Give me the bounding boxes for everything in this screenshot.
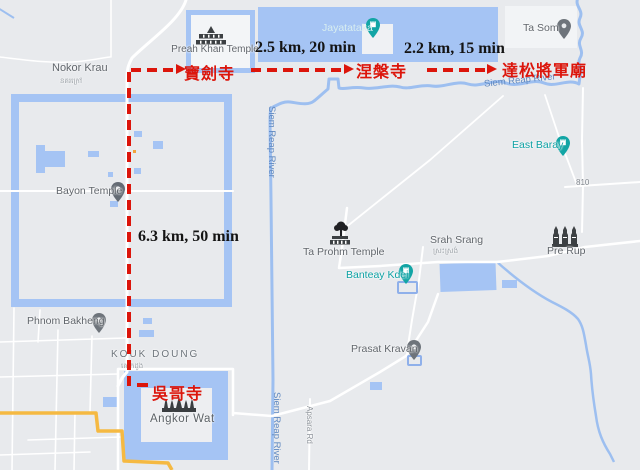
road-label-810: 810 (576, 179, 589, 187)
route-line-vertical (127, 72, 131, 389)
locality-label-kouk-doung-khmer: គោកដូង (121, 363, 143, 370)
distance-label-2: 2.2 km, 15 min (404, 40, 505, 58)
poi-label-srah-srang-khmer: ស្រះស្រង់ (433, 248, 458, 255)
stop-label-preah-khan: 寶劍寺 (184, 60, 235, 84)
route-arrowhead-2 (344, 64, 354, 74)
poi-label-banteay-kdei[interactable]: Banteay Kdei (346, 270, 408, 281)
stop-label-angkor-wat: 吳哥寺 (152, 380, 203, 404)
poi-label-prasat-kravan[interactable]: Prasat Kravan (351, 344, 418, 355)
stop-label-ta-som: 達松將軍廟 (502, 57, 587, 81)
poi-label-ta-prohm[interactable]: Ta Prohm Temple (303, 247, 385, 258)
three-towers-icon (551, 225, 579, 247)
water-label-jayatataka[interactable]: Jayatataka (322, 23, 373, 34)
preah-khan-temple-icon (196, 26, 226, 46)
locality-label-kouk-doung[interactable]: KOUK DOUNG (111, 350, 199, 361)
route-arrowhead-3 (487, 64, 497, 74)
route-line-h2 (251, 68, 344, 72)
poi-label-ta-som[interactable]: Ta Som (523, 23, 559, 34)
highway-road (0, 413, 172, 470)
route-line-h1 (131, 68, 176, 72)
map-canvas[interactable]: Preah Khan Temple Nokor Krau នគរក្រៅ Jay… (0, 0, 640, 470)
poi-label-phnom-bakheng[interactable]: Phnom Bakheng (27, 316, 105, 327)
river-label-south: Siem Reap River (271, 392, 281, 464)
route-line-h4 (137, 383, 148, 387)
poi-label-bayon[interactable]: Bayon Temple (56, 186, 122, 197)
ta-som-pin[interactable] (557, 19, 571, 39)
distance-label-1: 2.5 km, 20 min (255, 39, 356, 57)
stop-label-neak-pean: 涅槃寺 (356, 58, 407, 82)
tree-temple-icon (328, 221, 352, 248)
poi-label-angkor-wat[interactable]: Angkor Wat (150, 413, 215, 425)
road-label-apsara-rd: Apsara Rd (305, 406, 313, 444)
route-line-h3 (427, 68, 487, 72)
locality-label-nokor-krau-khmer: នគរក្រៅ (60, 78, 82, 85)
poi-label-pre-rup[interactable]: Pre Rup (547, 246, 586, 257)
distance-label-3: 6.3 km, 50 min (138, 228, 239, 246)
river-label-west: Siem Reap River (266, 106, 276, 178)
locality-label-nokor-krau[interactable]: Nokor Krau (52, 63, 108, 75)
poi-label-preah-khan[interactable]: Preah Khan Temple (170, 45, 260, 56)
poi-label-east-baray[interactable]: East Baray (512, 140, 563, 151)
poi-label-srah-srang[interactable]: Srah Srang (430, 235, 483, 246)
